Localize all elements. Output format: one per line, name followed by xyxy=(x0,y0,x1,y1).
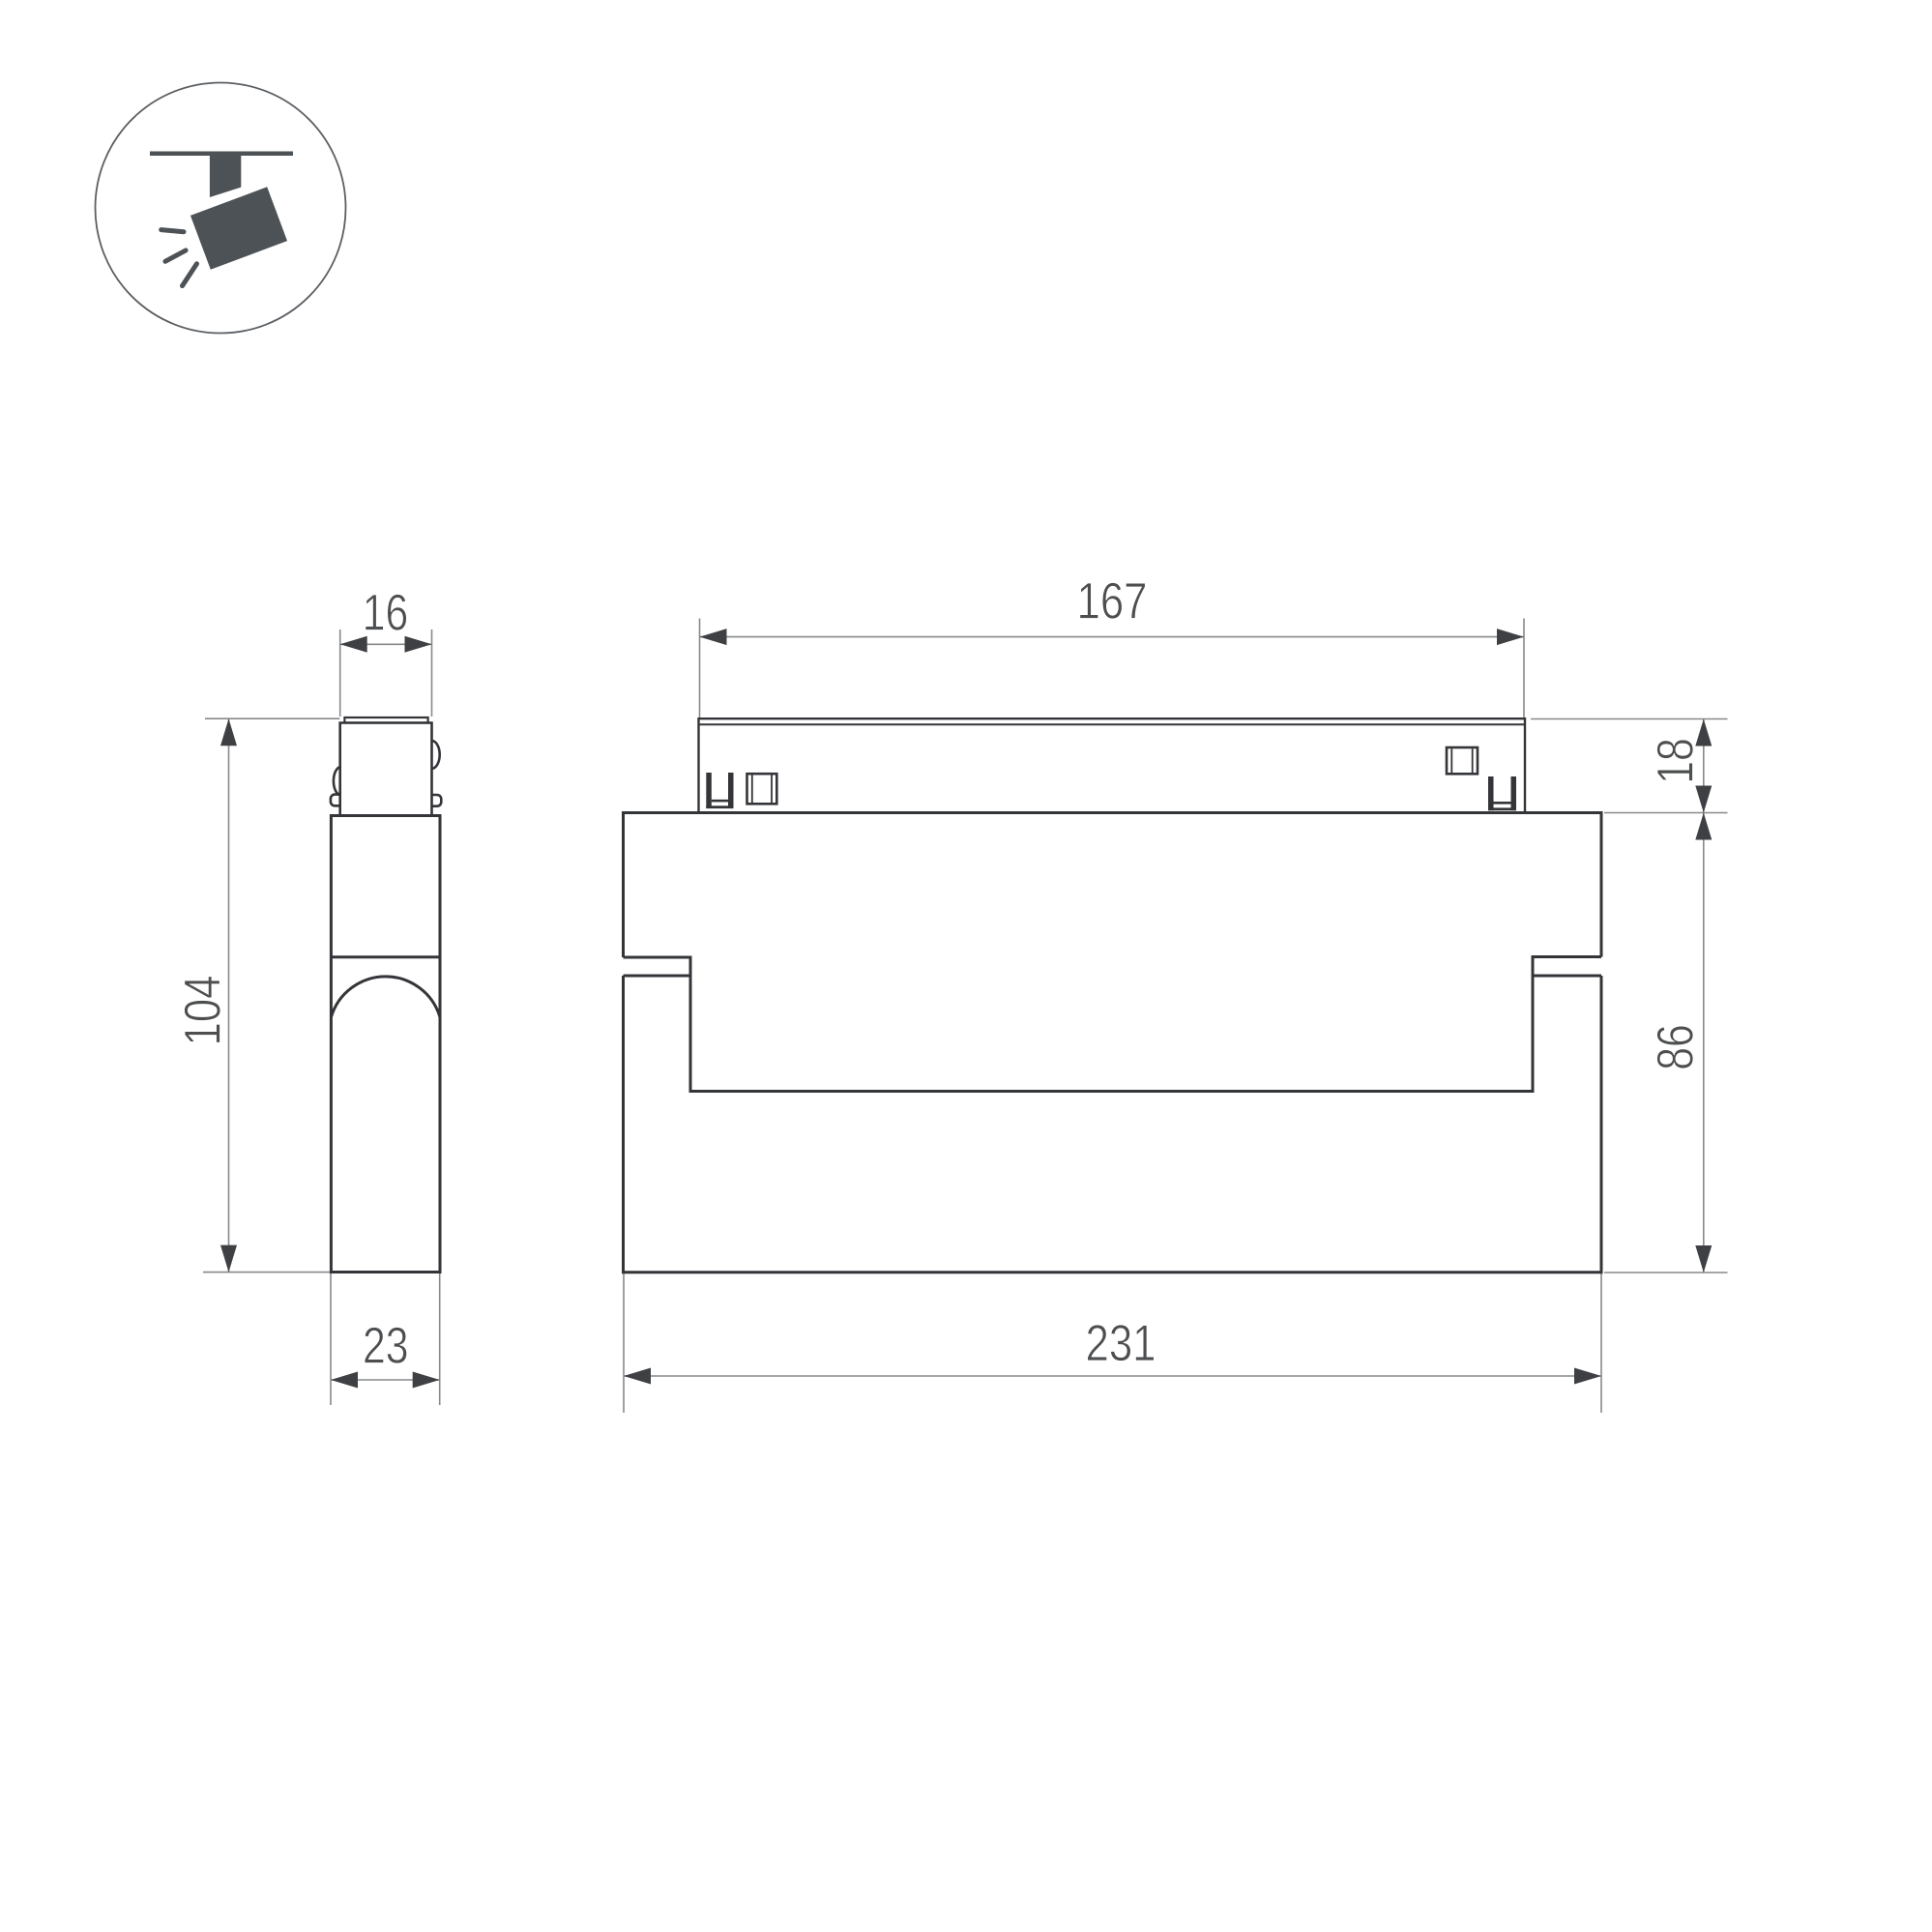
svg-text:104: 104 xyxy=(175,976,232,1046)
svg-text:167: 167 xyxy=(1077,573,1148,630)
svg-text:23: 23 xyxy=(363,1318,409,1375)
svg-text:16: 16 xyxy=(363,585,409,642)
svg-text:86: 86 xyxy=(1648,1024,1705,1070)
svg-text:231: 231 xyxy=(1086,1315,1156,1372)
svg-text:18: 18 xyxy=(1648,738,1705,784)
